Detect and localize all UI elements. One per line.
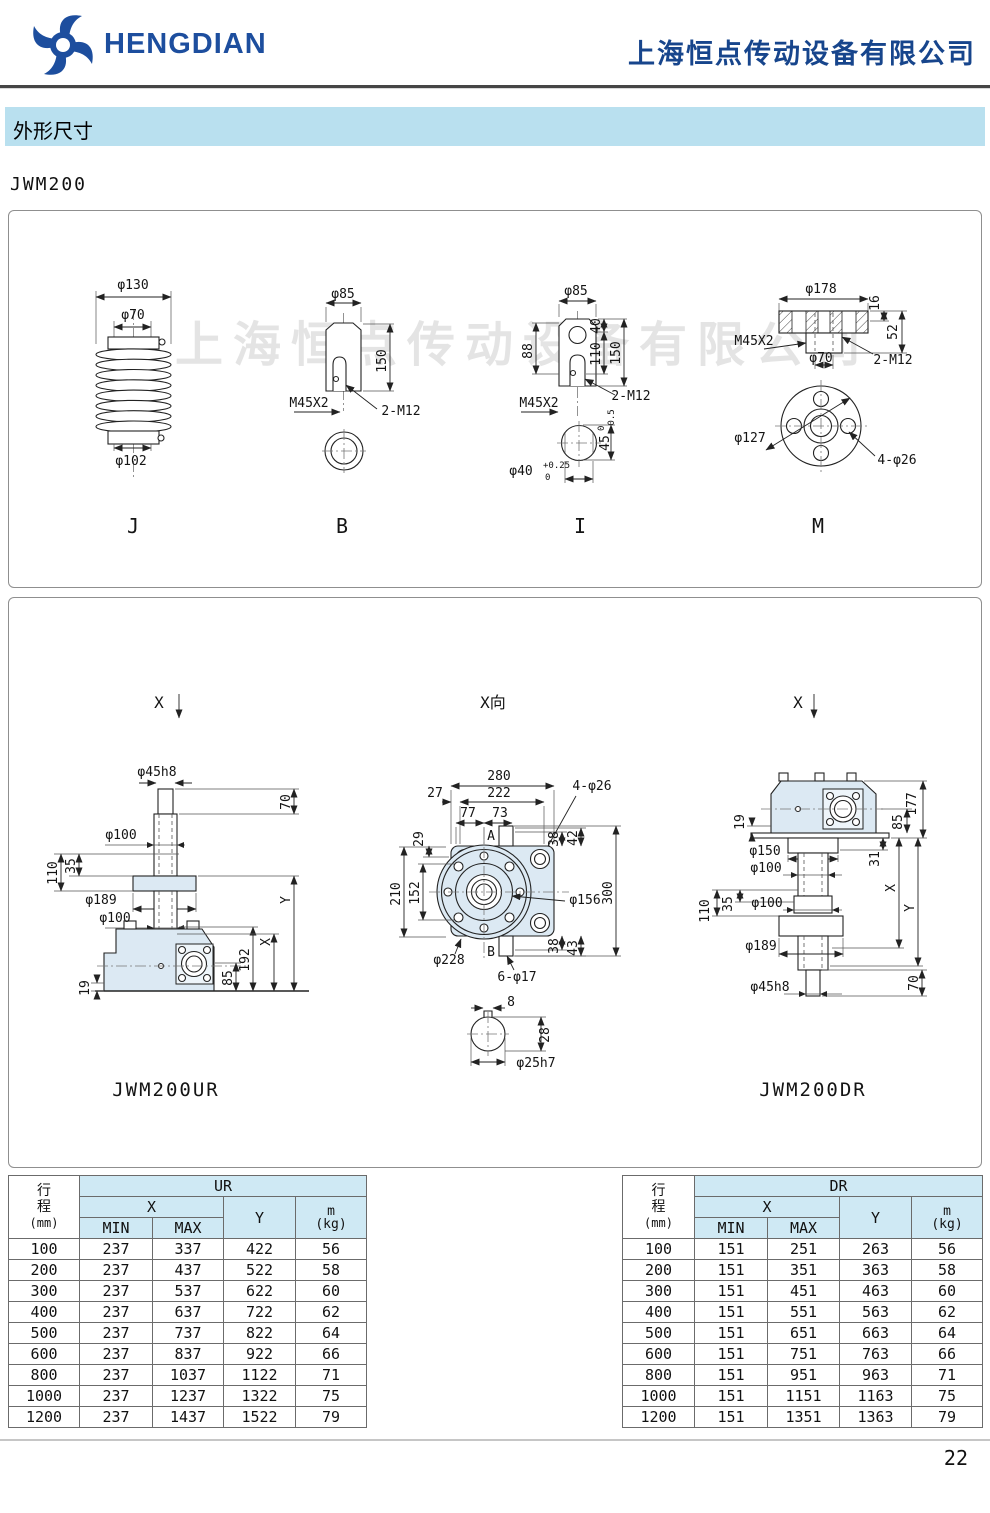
view-j: φ130 φ70 φ102 J (96, 278, 171, 538)
table-cell: 151 (695, 1323, 768, 1344)
table-cell: 151 (695, 1344, 768, 1365)
port-label: A (487, 829, 495, 844)
table-cell: 500 (623, 1323, 695, 1344)
dim-label: M45X2 (734, 334, 773, 349)
m-symbol: m (296, 1205, 366, 1218)
col-header-min: MIN (80, 1218, 153, 1239)
col-header-min: MIN (695, 1218, 768, 1239)
dim-label: X (884, 884, 899, 892)
table-cell: 651 (768, 1323, 840, 1344)
table-row: 12001511351136379 (623, 1407, 983, 1428)
dim-label: 70 (907, 975, 922, 991)
dim-label: φ85 (331, 287, 354, 302)
catalog-page: { "header": { "brand": "HENGDIAN", "comp… (0, 0, 990, 1513)
dim-tolerance: 0 (597, 426, 607, 431)
dim-label: φ127 (734, 431, 765, 446)
dim-label: 210 (389, 882, 404, 905)
dr-table-body: 1001512512635620015135136358300151451463… (623, 1239, 983, 1428)
dim-label: 2-M12 (611, 389, 650, 404)
dim-label: φ100 (99, 911, 130, 926)
table-cell: 751 (768, 1344, 840, 1365)
col-header-max: MAX (153, 1218, 224, 1239)
col-header-group: UR (80, 1176, 367, 1197)
table-cell: 100 (623, 1239, 695, 1260)
dim-label: 85 (891, 814, 906, 830)
dr-table-header: 行 程 (mm) DR X Y m (kg) MIN MAX (623, 1176, 983, 1239)
table-cell: 62 (912, 1302, 983, 1323)
dim-label: 110 (698, 899, 713, 922)
table-row: 30015145146360 (623, 1281, 983, 1302)
table-row: 8002371037112271 (9, 1365, 367, 1386)
ur-table-header: 行 程 (mm) UR X Y m (kg) MIN MAX (9, 1176, 367, 1239)
col-header-max: MAX (768, 1218, 840, 1239)
view-dr: X 19 177 85 φ150 31 φ100 X Y 110 35 φ100… (698, 693, 927, 1101)
logo-pinwheel (33, 15, 93, 75)
table-cell: 1351 (768, 1407, 840, 1428)
table-row: 40023763772262 (9, 1302, 367, 1323)
view-b: φ85 150 M45X2 2-M12 B (289, 287, 420, 538)
col-header-stroke: 行 程 (mm) (9, 1176, 80, 1239)
stroke-char: 程 (623, 1199, 694, 1215)
table-row: 60023783792266 (9, 1344, 367, 1365)
dim-label: 73 (492, 806, 508, 821)
table-cell: 400 (623, 1302, 695, 1323)
table-cell: 151 (695, 1260, 768, 1281)
col-header-group: DR (695, 1176, 983, 1197)
table-cell: 600 (9, 1344, 80, 1365)
table-cell: 600 (623, 1344, 695, 1365)
table-cell: 151 (695, 1407, 768, 1428)
table-cell: 151 (695, 1386, 768, 1407)
m-unit: (kg) (296, 1218, 366, 1231)
table-cell: 237 (80, 1323, 153, 1344)
dim-label: Y (279, 896, 294, 904)
view-b-geometry (294, 303, 394, 473)
table-cell: 337 (153, 1239, 224, 1260)
table-cell: 1363 (840, 1407, 912, 1428)
table-cell: 200 (9, 1260, 80, 1281)
dim-label: 35 (721, 896, 736, 912)
dim-label: 85 (221, 970, 236, 986)
page-number: 22 (944, 1446, 968, 1470)
table-cell: 237 (80, 1260, 153, 1281)
stroke-unit: (mm) (9, 1215, 79, 1231)
dim-label: 192 (238, 948, 253, 971)
section-arrow-label: X (154, 693, 164, 712)
dim-label: 8 (507, 995, 515, 1010)
table-cell: 822 (224, 1323, 296, 1344)
footer-divider (0, 1439, 990, 1441)
table-row: 10023733742256 (9, 1239, 367, 1260)
table-cell: 537 (153, 1281, 224, 1302)
xview-title: X向 (480, 693, 506, 712)
table-cell: 71 (296, 1365, 367, 1386)
table-cell: 237 (80, 1344, 153, 1365)
assembly-drawing: X φ45h8 70 φ100 110 35 φ189 φ100 Y X 192… (9, 598, 981, 1167)
table-cell: 100 (9, 1239, 80, 1260)
dim-label: 222 (487, 786, 510, 801)
dim-label: φ156 (569, 893, 600, 908)
table-cell: 58 (912, 1260, 983, 1281)
table-cell: 1522 (224, 1407, 296, 1428)
table-row: 10001511151116375 (623, 1386, 983, 1407)
dim-label: 70 (279, 794, 294, 810)
dim-label: φ40 (509, 464, 532, 479)
col-header-m: m (kg) (912, 1197, 983, 1239)
table-cell: 763 (840, 1344, 912, 1365)
dim-label: 38 (547, 938, 562, 954)
table-cell: 64 (912, 1323, 983, 1344)
dim-label: 4-φ26 (877, 453, 916, 468)
hengdian-logo-icon (30, 12, 96, 80)
dim-label: 19 (78, 980, 93, 996)
section-arrow-label: X (793, 693, 803, 712)
dim-label: X (259, 938, 274, 946)
view-i: φ85 88 40 110 150 M45X2 2-M12 φ40 +0.25 … (509, 284, 650, 538)
dim-label-group: 45 0 -0.5 (597, 409, 617, 451)
dim-label: 280 (487, 769, 510, 784)
dim-label: 27 (427, 786, 443, 801)
dim-label: 19 (733, 814, 748, 830)
table-row: 20015135136358 (623, 1260, 983, 1281)
table-cell: 500 (9, 1323, 80, 1344)
table-cell: 800 (9, 1365, 80, 1386)
table-cell: 75 (912, 1386, 983, 1407)
table-cell: 60 (912, 1281, 983, 1302)
ur-spec-table: 行 程 (mm) UR X Y m (kg) MIN MAX 100237337… (8, 1175, 367, 1428)
col-header-x: X (80, 1197, 224, 1218)
table-cell: 351 (768, 1260, 840, 1281)
dim-label: φ70 (809, 351, 832, 366)
view-x-direction: X向 280 222 27 4-φ26 77 73 29 A 38 42 210… (389, 693, 621, 1071)
table-cell: 237 (80, 1281, 153, 1302)
table-cell: 522 (224, 1260, 296, 1281)
table-cell: 56 (296, 1239, 367, 1260)
col-header-x: X (695, 1197, 840, 1218)
table-cell: 58 (296, 1260, 367, 1281)
table-cell: 200 (623, 1260, 695, 1281)
dim-label: M45X2 (519, 396, 558, 411)
table-cell: 237 (80, 1302, 153, 1323)
dim-label: φ189 (745, 939, 776, 954)
dr-spec-table: 行 程 (mm) DR X Y m (kg) MIN MAX 100151251… (622, 1175, 983, 1428)
m-symbol: m (912, 1205, 982, 1218)
stroke-char: 程 (9, 1199, 79, 1215)
dim-label: 2-M12 (873, 353, 912, 368)
table-cell: 422 (224, 1239, 296, 1260)
dim-label: φ45h8 (750, 980, 789, 995)
dim-label: 31 (868, 851, 883, 867)
table-cell: 237 (80, 1407, 153, 1428)
table-cell: 463 (840, 1281, 912, 1302)
dim-label: 300 (601, 881, 616, 904)
dim-label: 110 (46, 861, 61, 884)
dim-label: 38 (547, 831, 562, 847)
table-cell: 622 (224, 1281, 296, 1302)
dim-label: 45 (598, 435, 613, 451)
dim-label: φ100 (105, 828, 136, 843)
table-cell: 151 (695, 1365, 768, 1386)
table-row: 80015195196371 (623, 1365, 983, 1386)
table-cell: 400 (9, 1302, 80, 1323)
table-cell: 551 (768, 1302, 840, 1323)
table-row: 10002371237132275 (9, 1386, 367, 1407)
table-cell: 722 (224, 1302, 296, 1323)
table-cell: 963 (840, 1365, 912, 1386)
table-cell: 1437 (153, 1407, 224, 1428)
table-cell: 151 (695, 1239, 768, 1260)
table-cell: 151 (695, 1281, 768, 1302)
dim-label: 4-φ26 (572, 779, 611, 794)
table-cell: 62 (296, 1302, 367, 1323)
table-cell: 1200 (623, 1407, 695, 1428)
view-label: B (336, 514, 350, 538)
table-cell: 563 (840, 1302, 912, 1323)
dim-label: φ25h7 (516, 1056, 555, 1071)
table-cell: 1000 (623, 1386, 695, 1407)
table-cell: 663 (840, 1323, 912, 1344)
table-cell: 71 (912, 1365, 983, 1386)
table-cell: 1237 (153, 1386, 224, 1407)
dim-label: 152 (408, 881, 423, 904)
table-row: 10015125126356 (623, 1239, 983, 1260)
dim-label: φ178 (805, 282, 836, 297)
dim-label: 177 (905, 792, 920, 815)
model-label: JWM200 (10, 174, 87, 195)
dim-label: φ102 (115, 454, 146, 469)
table-row: 30023753762260 (9, 1281, 367, 1302)
section-bar (5, 107, 985, 146)
dim-label: 43 (566, 940, 581, 956)
table-cell: 237 (80, 1239, 153, 1260)
col-header-y: Y (224, 1197, 296, 1239)
view-label: M (812, 514, 826, 538)
stroke-unit: (mm) (623, 1215, 694, 1231)
table-cell: 363 (840, 1260, 912, 1281)
table-cell: 1200 (9, 1407, 80, 1428)
dim-label: 150 (375, 349, 390, 372)
table-row: 60015175176366 (623, 1344, 983, 1365)
view-label: I (574, 514, 588, 538)
table-cell: 737 (153, 1323, 224, 1344)
company-name: 上海恒点传动设备有限公司 (628, 32, 976, 71)
table-row: 40015155156362 (623, 1302, 983, 1323)
table-row: 50023773782264 (9, 1323, 367, 1344)
ur-table-body: 1002373374225620023743752258300237537622… (9, 1239, 367, 1428)
dim-label: 29 (412, 831, 427, 847)
table-cell: 837 (153, 1344, 224, 1365)
dim-label: 28 (538, 1027, 553, 1043)
table-cell: 1163 (840, 1386, 912, 1407)
section-title: 外形尺寸 (13, 115, 93, 144)
view-ur-geometry (54, 694, 309, 999)
table-cell: 79 (912, 1407, 983, 1428)
table-cell: 79 (296, 1407, 367, 1428)
assembly-panel: X φ45h8 70 φ100 110 35 φ189 φ100 Y X 192… (8, 597, 982, 1168)
table-cell: 1151 (768, 1386, 840, 1407)
header-divider-light (0, 88, 990, 89)
view-caption: JWM200DR (759, 1079, 867, 1101)
dim-label: φ85 (564, 284, 587, 299)
dim-label: 40 (589, 318, 604, 334)
table-cell: 66 (296, 1344, 367, 1365)
dim-label: φ130 (117, 278, 148, 293)
dim-label: 35 (64, 858, 79, 874)
table-cell: 237 (80, 1365, 153, 1386)
table-cell: 263 (840, 1239, 912, 1260)
col-header-m: m (kg) (296, 1197, 367, 1239)
table-cell: 66 (912, 1344, 983, 1365)
dim-label: φ189 (85, 893, 116, 908)
brand-name: HENGDIAN (104, 28, 267, 61)
table-cell: 60 (296, 1281, 367, 1302)
dim-label: M45X2 (289, 396, 328, 411)
dim-label: 6-φ17 (497, 970, 536, 985)
view-caption: JWM200UR (112, 1079, 220, 1101)
view-x-geometry (399, 786, 621, 1066)
table-row: 50015165166364 (623, 1323, 983, 1344)
dim-label: 2-M12 (381, 404, 420, 419)
end-fittings-panel: 上海恒点传动设备有限公司 (8, 210, 982, 588)
dim-tolerance: 0 (545, 473, 550, 483)
m-unit: (kg) (912, 1218, 982, 1231)
table-cell: 451 (768, 1281, 840, 1302)
dim-tolerance: +0.25 (543, 461, 570, 471)
view-dr-geometry (712, 694, 927, 997)
table-cell: 300 (9, 1281, 80, 1302)
dim-label: 150 (609, 341, 624, 364)
dim-label: 42 (566, 830, 581, 846)
table-cell: 56 (912, 1239, 983, 1260)
port-label: B (487, 945, 495, 960)
table-cell: 237 (80, 1386, 153, 1407)
table-cell: 637 (153, 1302, 224, 1323)
end-fittings-drawing: φ130 φ70 φ102 J φ85 150 (9, 211, 981, 587)
dim-label: 77 (460, 806, 476, 821)
dim-label: φ228 (433, 953, 464, 968)
col-header-stroke: 行 程 (mm) (623, 1176, 695, 1239)
dim-label: φ70 (121, 308, 144, 323)
table-cell: 922 (224, 1344, 296, 1365)
table-cell: 1322 (224, 1386, 296, 1407)
view-ur: X φ45h8 70 φ100 110 35 φ189 φ100 Y X 192… (46, 693, 309, 1101)
table-cell: 800 (623, 1365, 695, 1386)
table-row: 12002371437152279 (9, 1407, 367, 1428)
table-cell: 951 (768, 1365, 840, 1386)
dim-label: 16 (868, 295, 883, 311)
dim-label: Y (903, 904, 918, 912)
dim-label: φ150 (749, 844, 780, 859)
dim-label: 52 (886, 324, 901, 340)
stroke-char: 行 (623, 1183, 694, 1199)
dim-label: φ100 (750, 861, 781, 876)
dim-label: 88 (521, 343, 536, 359)
table-cell: 64 (296, 1323, 367, 1344)
table-cell: 251 (768, 1239, 840, 1260)
table-cell: 1122 (224, 1365, 296, 1386)
dim-tolerance: -0.5 (607, 409, 617, 431)
dim-label: φ100 (751, 896, 782, 911)
col-header-y: Y (840, 1197, 912, 1239)
table-row: 20023743752258 (9, 1260, 367, 1281)
table-cell: 75 (296, 1386, 367, 1407)
dim-label: 110 (589, 342, 604, 365)
view-label: J (127, 514, 141, 538)
dim-label: φ45h8 (137, 765, 176, 780)
table-cell: 1000 (9, 1386, 80, 1407)
table-cell: 151 (695, 1302, 768, 1323)
table-cell: 437 (153, 1260, 224, 1281)
view-m: φ178 16 52 M45X2 φ70 2-M12 φ127 4-φ26 M (734, 282, 916, 538)
table-cell: 1037 (153, 1365, 224, 1386)
stroke-char: 行 (9, 1183, 79, 1199)
table-cell: 300 (623, 1281, 695, 1302)
